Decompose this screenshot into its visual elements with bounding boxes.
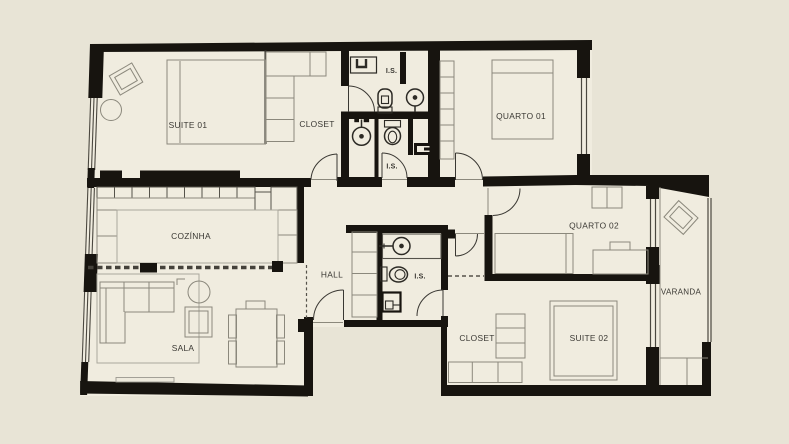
svg-text:SUITE 01: SUITE 01 [169,120,208,130]
svg-text:I.S.: I.S. [386,68,397,75]
svg-text:CLOSET: CLOSET [459,333,494,343]
svg-text:QUARTO 02: QUARTO 02 [569,221,619,231]
svg-text:SUITE 02: SUITE 02 [570,333,609,343]
svg-text:CLOSET: CLOSET [299,119,334,129]
svg-text:I.S.: I.S. [414,274,425,281]
svg-text:I.S.: I.S. [386,164,397,171]
svg-text:COZÍNHA: COZÍNHA [171,231,211,241]
svg-text:QUARTO 01: QUARTO 01 [496,111,546,121]
svg-text:HALL: HALL [321,270,343,280]
svg-text:SALA: SALA [172,343,195,353]
svg-text:VARANDA: VARANDA [661,288,702,297]
